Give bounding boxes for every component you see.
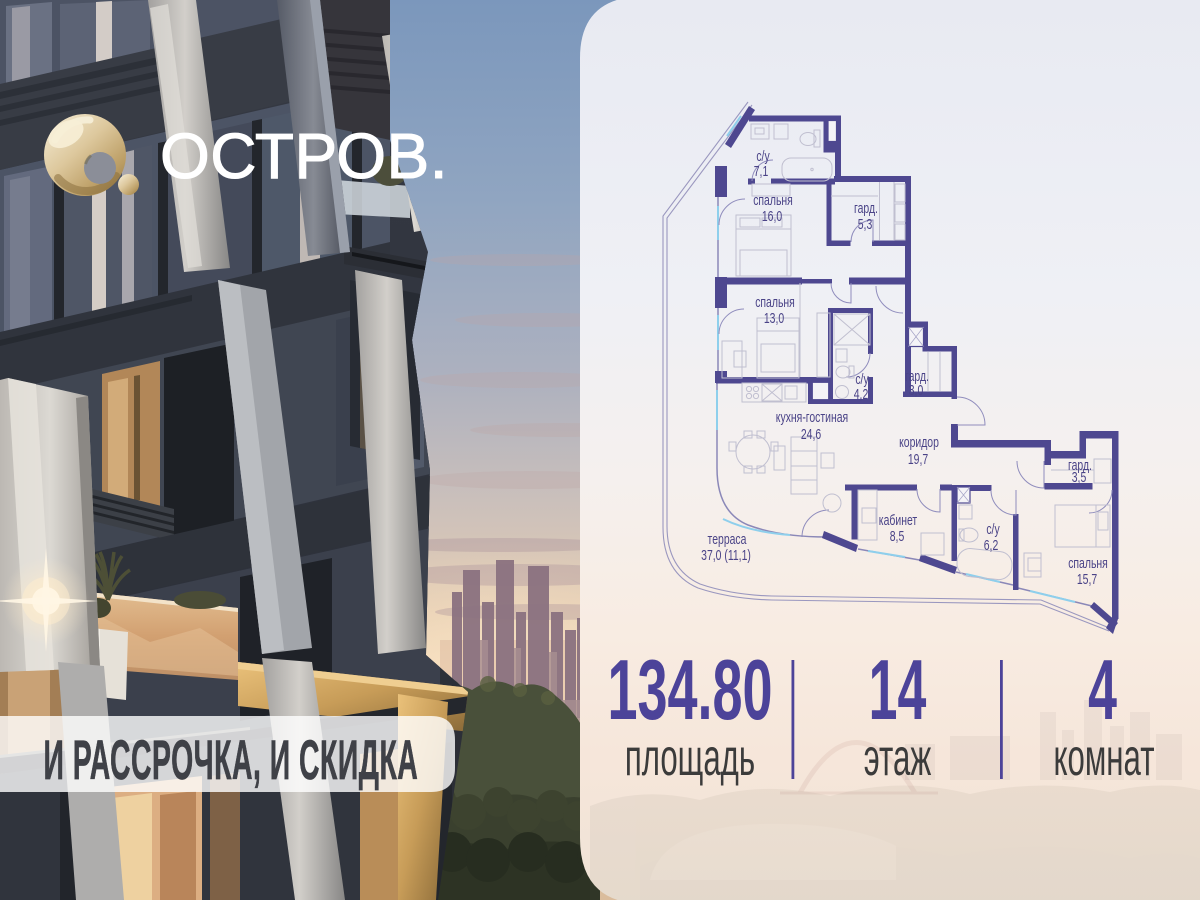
svg-text:комнат: комнат (1054, 729, 1155, 787)
svg-text:с/у: с/у (986, 521, 1000, 537)
svg-text:с/у: с/у (855, 371, 869, 387)
svg-text:терраса: терраса (708, 531, 748, 547)
svg-text:15,7: 15,7 (1077, 571, 1097, 587)
svg-text:14: 14 (869, 642, 927, 737)
svg-text:ОСТРОВ.: ОСТРОВ. (160, 120, 448, 192)
svg-text:8,5: 8,5 (890, 528, 905, 544)
svg-text:6,2: 6,2 (984, 537, 999, 553)
svg-text:спальня: спальня (1068, 555, 1108, 571)
svg-text:19,7: 19,7 (908, 451, 928, 467)
svg-text:И РАССРОЧКА, И СКИДКА: И РАССРОЧКА, И СКИДКА (44, 730, 419, 792)
svg-text:24,6: 24,6 (801, 426, 821, 442)
svg-text:кухня-гостиная: кухня-гостиная (776, 409, 848, 425)
svg-text:3,0: 3,0 (909, 382, 924, 398)
svg-text:с/у: с/у (756, 148, 770, 164)
svg-text:спальня: спальня (753, 192, 793, 208)
svg-text:площадь: площадь (625, 729, 755, 787)
svg-text:гард.: гард. (854, 200, 878, 216)
svg-text:коридор: коридор (899, 434, 939, 450)
svg-text:4,2: 4,2 (854, 386, 869, 402)
svg-text:16,0: 16,0 (762, 208, 782, 224)
svg-text:спальня: спальня (755, 294, 795, 310)
svg-text:37,0 (11,1): 37,0 (11,1) (701, 547, 751, 563)
svg-text:134.80: 134.80 (607, 644, 772, 738)
svg-text:7,1: 7,1 (754, 163, 769, 179)
svg-text:кабинет: кабинет (879, 512, 918, 528)
svg-text:этаж: этаж (864, 729, 932, 787)
svg-text:5,3: 5,3 (858, 216, 873, 232)
svg-text:3,5: 3,5 (1072, 469, 1087, 485)
svg-text:13,0: 13,0 (764, 310, 784, 326)
svg-text:4: 4 (1088, 642, 1117, 737)
